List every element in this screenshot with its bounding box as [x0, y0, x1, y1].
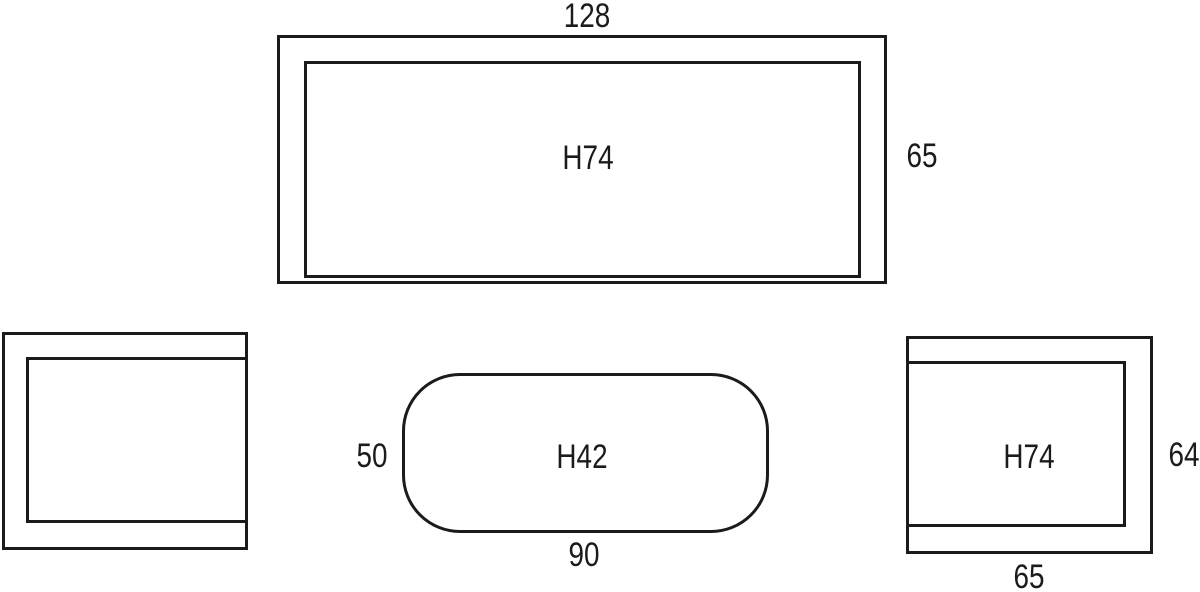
sofa-depth-dimension: 65	[906, 139, 937, 173]
furniture-dimension-diagram: 128 H74 65 50 H42 90 H74 64 65	[0, 0, 1200, 592]
armchair-right-height-label: H74	[1003, 440, 1054, 474]
armchair-left-seat-outline	[26, 357, 245, 523]
armchair-right-depth-dimension: 64	[1168, 438, 1199, 472]
table-height-label: H42	[556, 440, 607, 474]
sofa-height-label: H74	[562, 141, 613, 175]
table-depth-dimension: 50	[356, 439, 387, 473]
table-width-dimension: 90	[568, 538, 599, 572]
armchair-right-width-dimension: 65	[1013, 560, 1044, 592]
sofa-width-dimension: 128	[564, 0, 611, 33]
